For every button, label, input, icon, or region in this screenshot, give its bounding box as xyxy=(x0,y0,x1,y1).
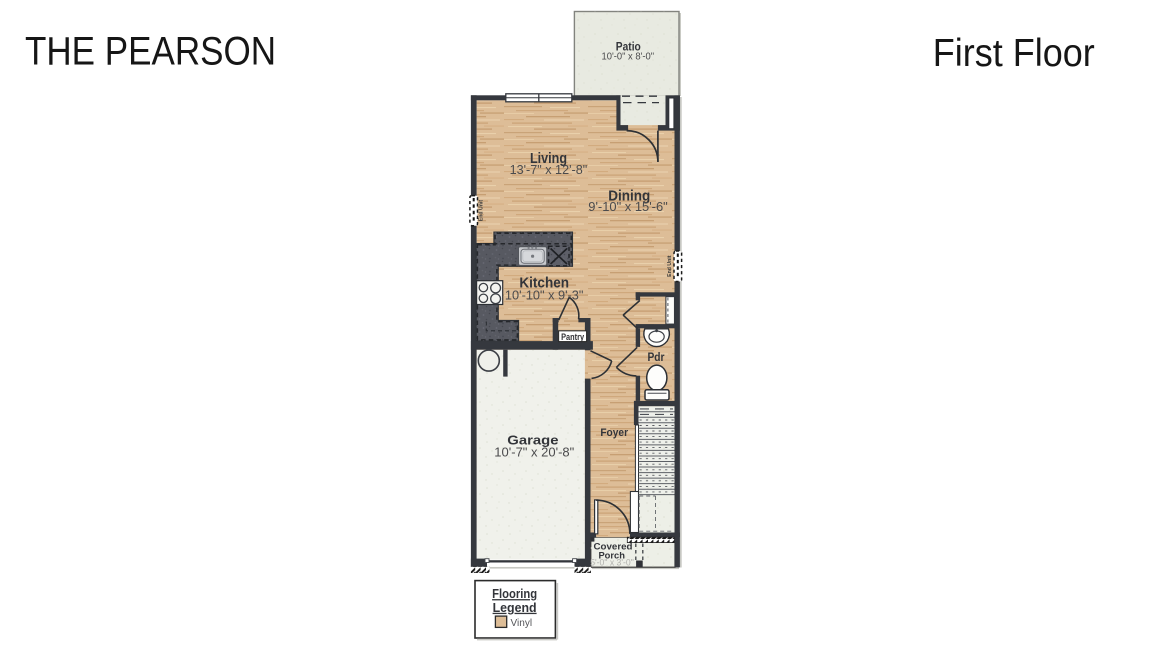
svg-text:End Unit: End Unit xyxy=(478,200,484,222)
svg-text:Pdr: Pdr xyxy=(648,352,665,364)
svg-text:Vinyl: Vinyl xyxy=(511,617,533,629)
svg-text:10'-7" x 20'-8": 10'-7" x 20'-8" xyxy=(494,446,574,460)
svg-text:5'-0" x 3'-0": 5'-0" x 3'-0" xyxy=(590,558,634,568)
svg-text:Pantry: Pantry xyxy=(561,332,584,342)
svg-text:10'-10" x 9'-3": 10'-10" x 9'-3" xyxy=(505,288,584,302)
svg-text:Foyer: Foyer xyxy=(600,427,628,439)
svg-text:10'-0" x 8'-0": 10'-0" x 8'-0" xyxy=(602,52,655,63)
svg-text:Legend: Legend xyxy=(493,600,537,615)
svg-text:THE PEARSON: THE PEARSON xyxy=(25,30,276,74)
svg-text:End Unit: End Unit xyxy=(667,255,673,277)
svg-text:First Floor: First Floor xyxy=(933,32,1095,75)
svg-text:9'-10" x 15'-6": 9'-10" x 15'-6" xyxy=(588,200,668,214)
svg-text:13'-7" x 12'-8": 13'-7" x 12'-8" xyxy=(510,163,588,177)
